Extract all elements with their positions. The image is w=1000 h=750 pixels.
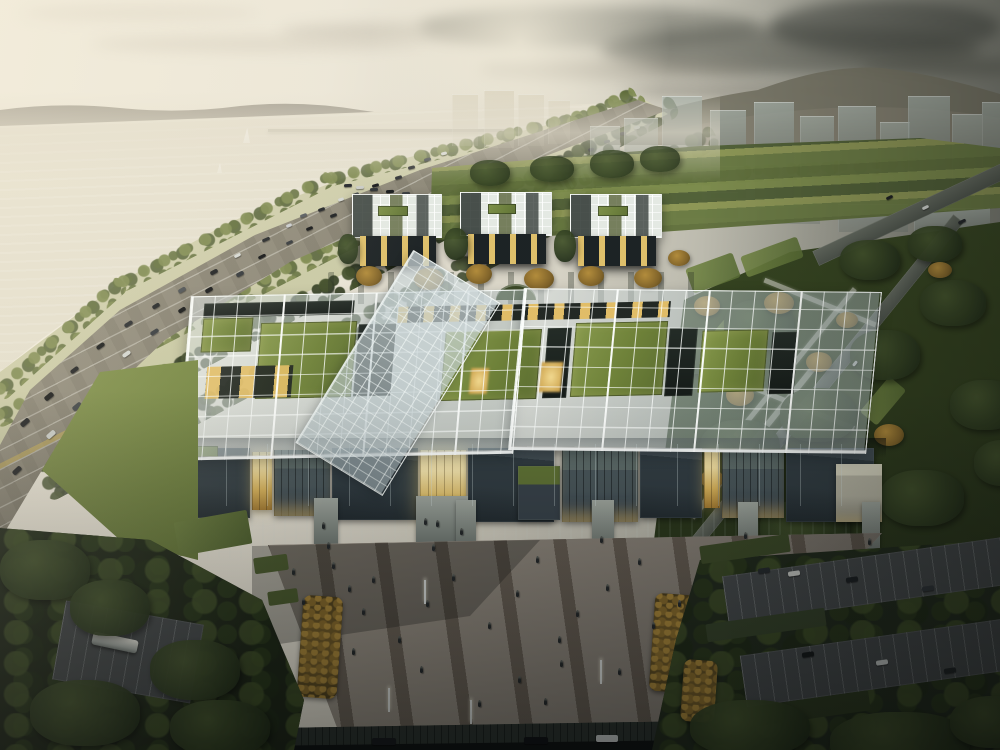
lawnchip: [699, 534, 791, 564]
southeast-parking-features: [0, 0, 1000, 750]
tree-dark-big: [690, 700, 810, 750]
architectural-rendering: [0, 0, 1000, 750]
tree-dark-big: [830, 712, 970, 750]
